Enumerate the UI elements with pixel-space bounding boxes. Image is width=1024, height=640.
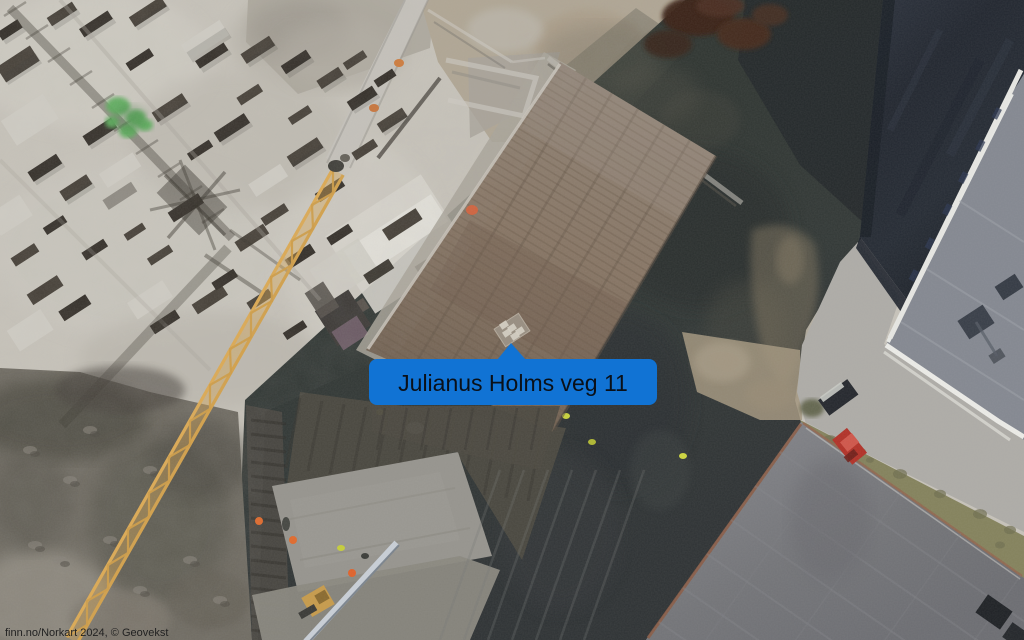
svg-text:Julianus Holms veg 11: Julianus Holms veg 11	[398, 370, 628, 396]
svg-text:finn.no/Norkart 2024, © Geov: finn.no/Norkart 2024, © Geovekst	[5, 627, 168, 639]
